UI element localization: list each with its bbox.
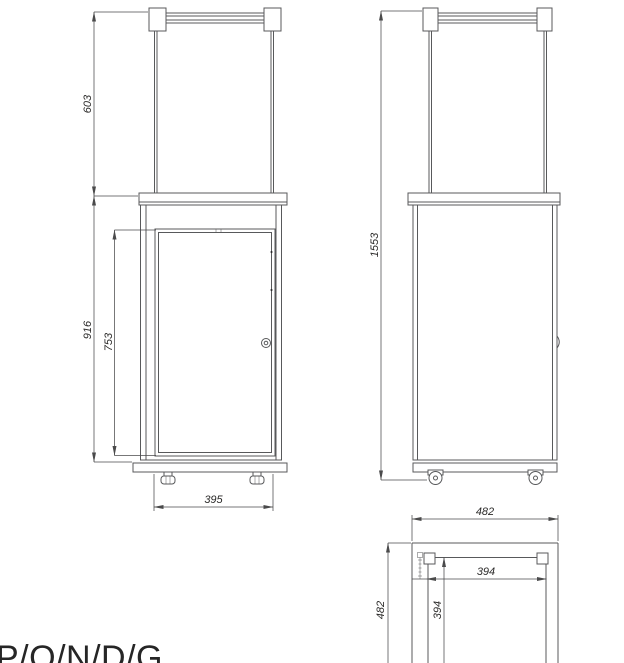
corner-post-right <box>537 553 548 564</box>
top-bar-rail <box>438 13 537 23</box>
dimension-label: 482 <box>476 506 494 518</box>
right-hanger-rod <box>544 31 547 193</box>
dimension-door-height: 753 <box>103 230 156 456</box>
left-hanger-rod <box>155 31 158 193</box>
cabinet-lid <box>139 193 287 205</box>
cabinet-base <box>133 463 287 472</box>
dimension-label: 394 <box>477 566 495 578</box>
top-bar-left-cap <box>423 8 438 31</box>
right-foot <box>250 472 264 484</box>
dimension-label: 603 <box>82 94 94 113</box>
right-hanger-rod <box>271 31 274 193</box>
door-catch-pin <box>271 251 273 253</box>
left-foot <box>161 472 175 484</box>
left-hanger-rod <box>429 31 432 193</box>
technical-drawing-page: 603 916 753 395 <box>0 0 624 663</box>
cabinet-lid <box>408 193 560 205</box>
side-view: 1553 <box>369 8 560 485</box>
plan-view: 482 394 <box>375 506 558 663</box>
dimension-label: 394 <box>432 601 444 619</box>
drawing-canvas: 603 916 753 395 <box>0 0 624 663</box>
corner-post-left <box>424 553 435 564</box>
dimension-overall-depth: 482 <box>375 543 411 663</box>
glass-door-frame <box>155 229 275 456</box>
right-caster-wheel <box>528 470 543 485</box>
top-bar-right-cap <box>537 8 552 31</box>
front-view: 603 916 753 395 <box>82 8 287 511</box>
door-catch-pin <box>271 289 273 291</box>
dimension-total-height: 1553 <box>369 11 427 480</box>
model-label: P/O/N/D/G <box>0 639 163 663</box>
top-bar-left-cap <box>149 8 166 31</box>
dimension-label: 482 <box>375 601 387 619</box>
dimension-inner-depth: 394 <box>432 558 444 663</box>
dimension-label: 395 <box>204 494 223 506</box>
dimension-overall-width: 482 <box>412 506 558 541</box>
front-cabinet <box>133 193 287 484</box>
igniter-detail <box>418 553 423 580</box>
door-handle <box>262 339 271 348</box>
dimension-label: 1553 <box>369 232 381 257</box>
left-caster-wheel <box>428 470 443 485</box>
front-top-bar <box>149 8 281 193</box>
dimension-top-section-height: 603 <box>82 12 148 196</box>
dimension-inner-width: 394 <box>412 566 547 579</box>
dimension-cabinet-height: 916 <box>82 196 138 462</box>
cabinet-side-panel <box>413 205 557 460</box>
glass-door-inner <box>159 233 272 453</box>
side-top-bar <box>423 8 552 193</box>
dimension-label: 753 <box>103 332 115 351</box>
cabinet-body <box>141 205 282 460</box>
side-cabinet <box>408 193 560 485</box>
dimension-label: 916 <box>82 320 94 339</box>
top-bar-rail <box>166 13 264 23</box>
top-bar-right-cap <box>264 8 281 31</box>
